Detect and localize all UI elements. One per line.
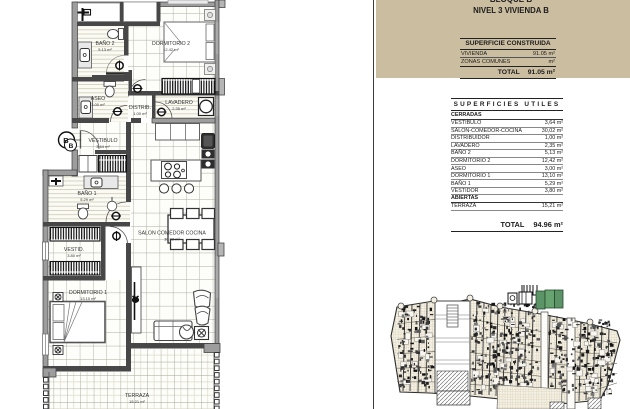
svg-text:30.02 m²: 30.02 m²: [164, 237, 180, 242]
svg-text:5.13 m²: 5.13 m²: [98, 47, 112, 52]
svg-text:5.29 m²: 5.29 m²: [80, 197, 94, 202]
svg-text:12.42 m²: 12.42 m²: [163, 47, 179, 52]
svg-text:3.00 m²: 3.00 m²: [91, 102, 105, 107]
svg-text:B: B: [69, 143, 74, 150]
svg-text:3.64 m²: 3.64 m²: [96, 144, 110, 149]
svg-text:3.80 m²: 3.80 m²: [67, 253, 81, 258]
svg-text:2.35 m²: 2.35 m²: [172, 106, 186, 111]
svg-text:15.21 m²: 15.21 m²: [129, 399, 145, 404]
svg-text:1.00 m²: 1.00 m²: [133, 111, 147, 116]
svg-text:13.10 m²: 13.10 m²: [80, 296, 96, 301]
svg-text:BAÑO 1: BAÑO 1: [77, 190, 96, 197]
svg-text:BAÑO 2: BAÑO 2: [95, 40, 114, 47]
